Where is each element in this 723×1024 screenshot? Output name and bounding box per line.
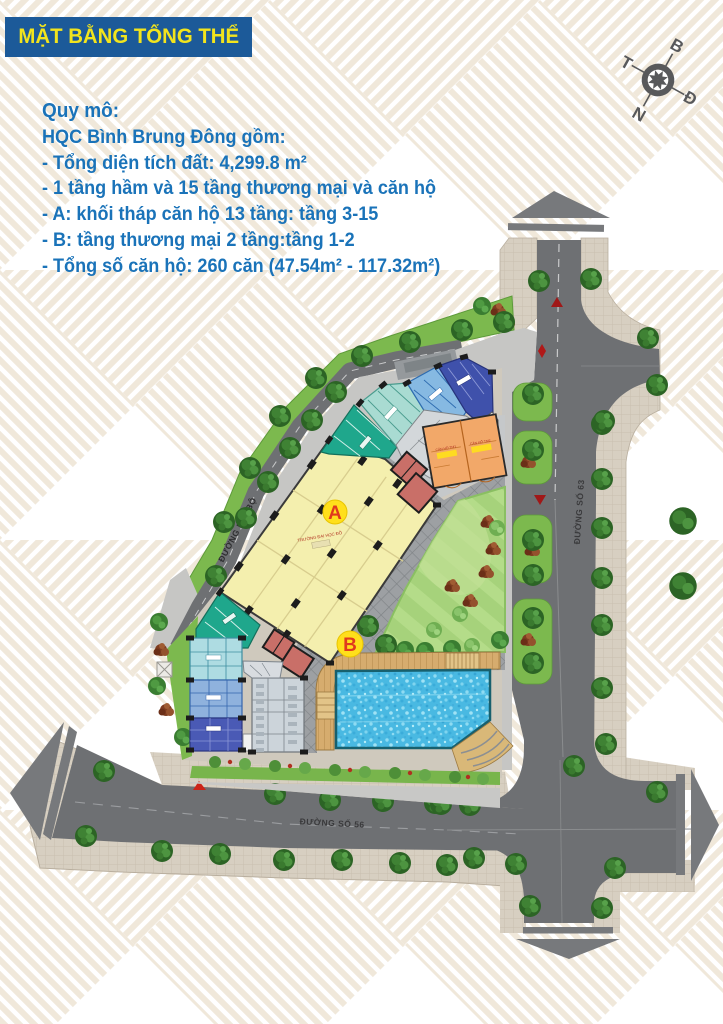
svg-text:B: B bbox=[343, 635, 357, 656]
svg-text:A: A bbox=[328, 503, 342, 524]
